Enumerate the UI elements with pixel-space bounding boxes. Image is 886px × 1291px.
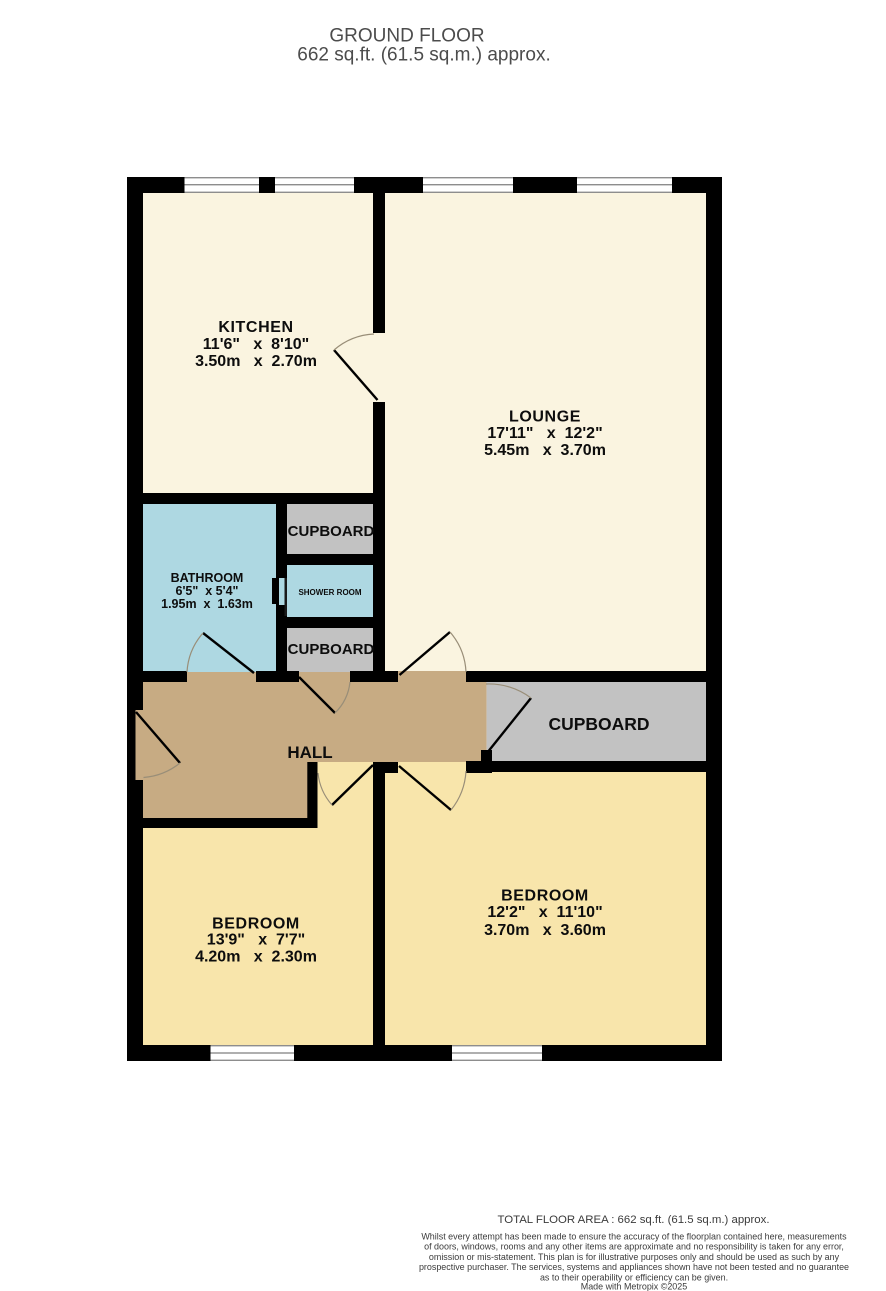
svg-text:GROUND FLOOR: GROUND FLOOR [329,26,484,47]
svg-text:LOUNGE: LOUNGE [509,409,581,426]
svg-text:5.45m x 3.70m: 5.45m x 3.70m [484,442,606,459]
svg-text:13'9" x 7'7": 13'9" x 7'7" [207,932,305,949]
svg-text:prospective purchaser. The ser: prospective purchaser. The services, sys… [419,1262,849,1272]
svg-text:BEDROOM: BEDROOM [212,916,300,933]
svg-text:3.70m x 3.60m: 3.70m x 3.60m [484,922,606,939]
svg-text:Made with Metropix ©2025: Made with Metropix ©2025 [581,1282,687,1291]
svg-text:CUPBOARD: CUPBOARD [288,641,375,658]
svg-text:TOTAL FLOOR AREA : 662 sq.ft.: TOTAL FLOOR AREA : 662 sq.ft. (61.5 sq.m… [497,1214,769,1226]
svg-text:12'2" x 11'10": 12'2" x 11'10" [487,904,602,921]
svg-text:of doors, windows, rooms and a: of doors, windows, rooms and any other i… [424,1242,844,1252]
svg-text:11'6" x 8'10": 11'6" x 8'10" [203,336,309,353]
svg-text:HALL: HALL [287,743,332,762]
svg-text:SHOWER ROOM: SHOWER ROOM [298,588,361,597]
svg-text:17'11" x 12'2": 17'11" x 12'2" [487,425,602,442]
svg-text:CUPBOARD: CUPBOARD [548,714,649,734]
svg-text:6'5" x 5'4": 6'5" x 5'4" [176,584,239,598]
svg-text:omission or mis-statement. Thi: omission or mis-statement. This plan is … [429,1252,840,1262]
svg-text:3.50m x 2.70m: 3.50m x 2.70m [195,353,317,370]
svg-text:CUPBOARD: CUPBOARD [288,523,375,540]
svg-text:BEDROOM: BEDROOM [501,888,589,905]
svg-text:662 sq.ft. (61.5 sq.m.) approx: 662 sq.ft. (61.5 sq.m.) approx. [297,45,550,66]
svg-text:Whilst every attempt has been: Whilst every attempt has been made to en… [421,1232,847,1242]
svg-text:4.20m x 2.30m: 4.20m x 2.30m [195,949,317,966]
svg-text:BATHROOM: BATHROOM [171,571,244,585]
svg-text:KITCHEN: KITCHEN [218,319,293,336]
svg-text:1.95m x 1.63m: 1.95m x 1.63m [161,597,253,611]
